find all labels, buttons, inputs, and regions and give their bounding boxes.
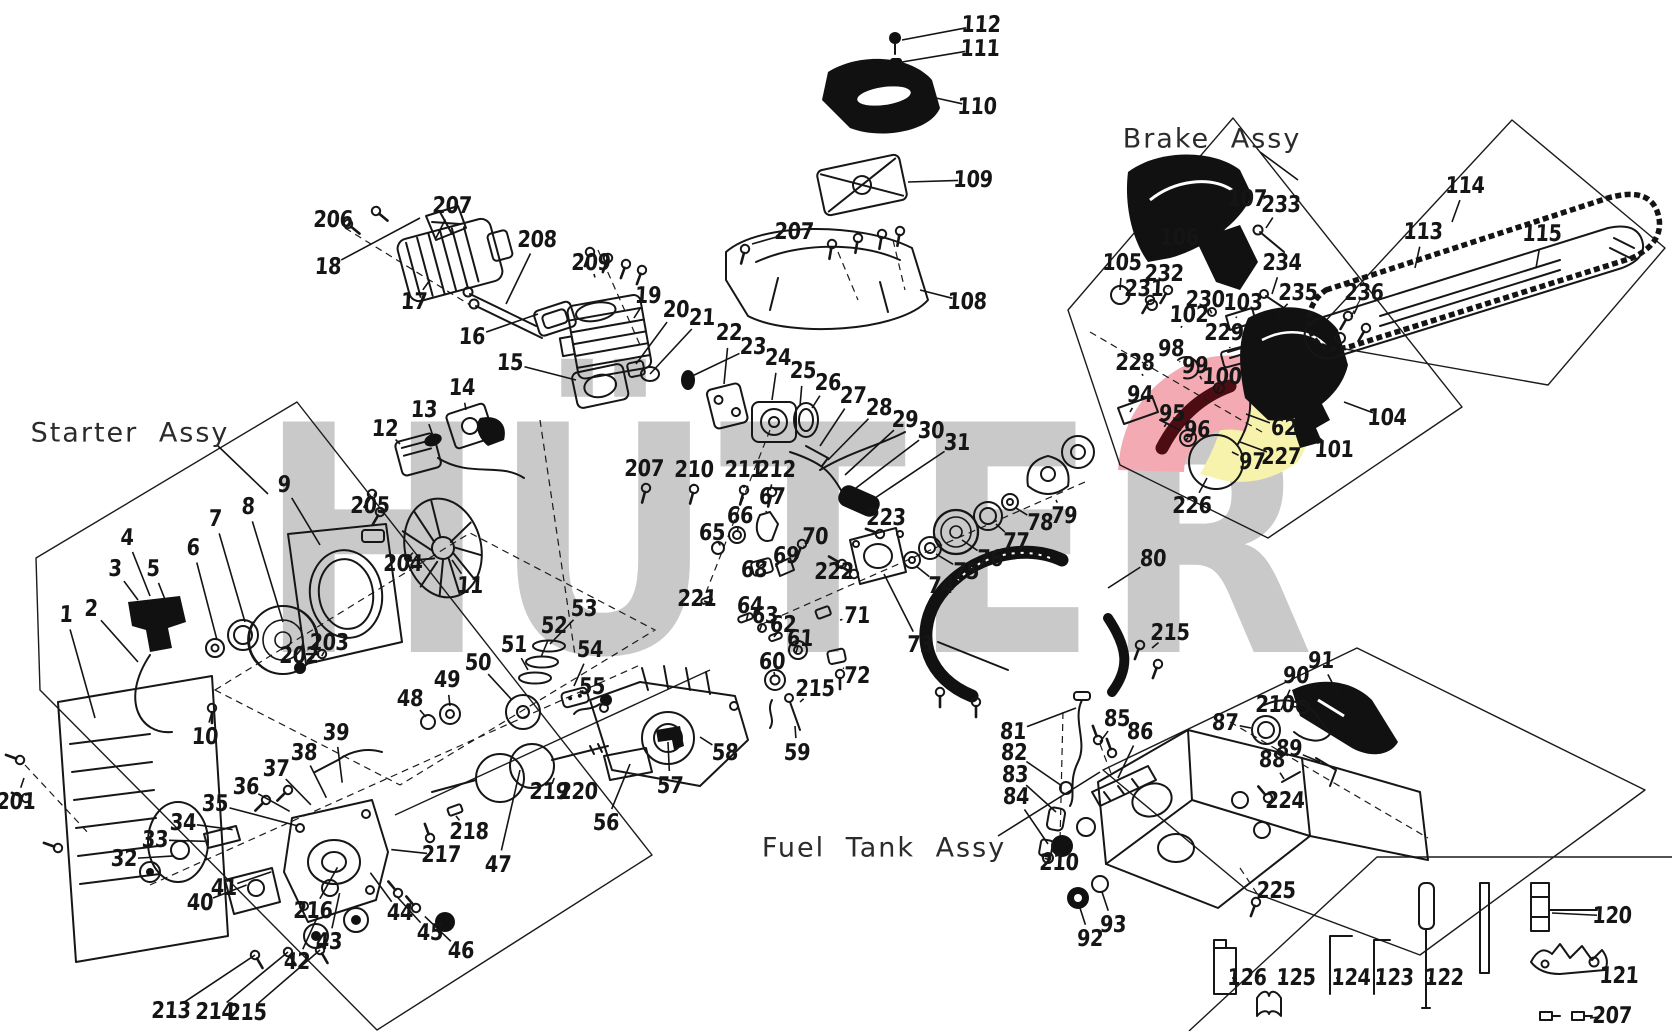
part-callout: 29 — [891, 407, 919, 433]
part-callout: 226 — [1172, 493, 1213, 519]
part-callout: 75 — [952, 559, 980, 585]
part-callout: 222 — [814, 559, 855, 585]
part-callout: 30 — [917, 418, 945, 444]
part-callout: 224 — [1265, 788, 1306, 814]
part-callout: 113 — [1403, 219, 1444, 245]
diagram-canvas: HÜTER — [0, 0, 1672, 1031]
part-callout: 215 — [227, 1000, 268, 1026]
part-callout: 68 — [740, 557, 768, 583]
part-callout: 24 — [764, 345, 792, 371]
part-callout: 15 — [496, 350, 524, 376]
part-callout: 50 — [464, 650, 492, 676]
part-callout: 87 — [1211, 710, 1239, 736]
part-callout: 42 — [283, 949, 311, 975]
part-callout: 220 — [558, 779, 599, 805]
part-callout: 56 — [592, 810, 620, 836]
part-callout: 104 — [1367, 405, 1408, 431]
part-callout: 215 — [795, 676, 836, 702]
part-callout: 115 — [1522, 221, 1563, 247]
part-callout: 95 — [1158, 401, 1186, 427]
part-callout: 206 — [313, 207, 354, 233]
part-callout: 228 — [1115, 350, 1156, 376]
part-callout: 39 — [322, 720, 350, 746]
part-callout: 74 — [927, 573, 955, 599]
part-callout: 79 — [1050, 503, 1078, 529]
part-callout: 10 — [191, 724, 219, 750]
part-callout: 207 — [432, 193, 473, 219]
part-callout: 111 — [960, 36, 1001, 62]
part-callout: 109 — [953, 167, 994, 193]
part-callout: 217 — [421, 842, 462, 868]
section-title-brake: Brake Assy — [1123, 124, 1302, 155]
part-callout: 91 — [1307, 648, 1335, 674]
callout-labels-layer: 1234567891020120220311204205121314206207… — [0, 0, 1672, 1031]
part-callout: 76 — [976, 546, 1004, 572]
part-callout: 54 — [576, 637, 604, 663]
part-callout: 45 — [416, 920, 444, 946]
part-callout: 26 — [814, 370, 842, 396]
part-callout: 212 — [756, 457, 797, 483]
part-callout: 69 — [772, 543, 800, 569]
part-callout: 114 — [1445, 173, 1486, 199]
part-callout: 225 — [1256, 878, 1297, 904]
part-callout: 120 — [1592, 903, 1633, 929]
part-callout: 62 — [1270, 415, 1298, 441]
part-callout: 86 — [1126, 719, 1154, 745]
part-callout: 2 — [84, 596, 99, 622]
part-callout: 1 — [59, 602, 74, 628]
part-callout: 93 — [1099, 912, 1127, 938]
section-title-starter: Starter Assy — [31, 418, 230, 449]
part-callout: 72 — [843, 663, 871, 689]
part-callout: 80 — [1139, 546, 1167, 572]
part-callout: 71 — [843, 603, 871, 629]
part-callout: 66 — [726, 503, 754, 529]
part-callout: 98 — [1157, 336, 1185, 362]
part-callout: 12 — [371, 416, 399, 442]
part-callout: 35 — [201, 791, 229, 817]
part-callout: 41 — [210, 875, 238, 901]
part-callout: 28 — [865, 395, 893, 421]
part-callout: 11 — [456, 573, 484, 599]
part-callout: 207 — [624, 456, 665, 482]
part-callout: 94 — [1126, 382, 1154, 408]
part-callout: 205 — [350, 493, 391, 519]
part-callout: 20 — [662, 297, 690, 323]
part-callout: 96 — [1183, 417, 1211, 443]
part-callout: 47 — [484, 852, 512, 878]
part-callout: 207 — [1592, 1003, 1633, 1029]
part-callout: 203 — [309, 630, 350, 656]
part-callout: 25 — [789, 358, 817, 384]
part-callout: 210 — [1255, 692, 1296, 718]
part-callout: 101 — [1314, 437, 1355, 463]
part-callout: 52 — [540, 613, 568, 639]
part-callout: 13 — [410, 397, 438, 423]
part-callout: 18 — [314, 254, 342, 280]
part-callout: 108 — [947, 289, 988, 315]
part-callout: 19 — [634, 283, 662, 309]
part-callout: 73 — [906, 632, 934, 658]
part-callout: 210 — [674, 457, 715, 483]
part-callout: 209 — [571, 250, 612, 276]
part-callout: 125 — [1276, 965, 1317, 991]
part-callout: 7 — [208, 506, 223, 532]
part-callout: 207 — [774, 219, 815, 245]
part-callout: 124 — [1331, 965, 1372, 991]
part-callout: 100 — [1202, 364, 1243, 390]
part-callout: 34 — [169, 810, 197, 836]
part-callout: 5 — [146, 556, 161, 582]
part-callout: 90 — [1282, 663, 1310, 689]
part-callout: 58 — [711, 740, 739, 766]
part-callout: 218 — [449, 819, 490, 845]
part-callout: 21 — [688, 305, 716, 331]
part-callout: 6 — [186, 535, 201, 561]
part-callout: 121 — [1599, 963, 1640, 989]
part-callout: 201 — [0, 789, 36, 815]
part-callout: 84 — [1002, 784, 1030, 810]
part-callout: 9 — [277, 472, 292, 498]
part-callout: 16 — [458, 324, 486, 350]
part-callout: 14 — [448, 375, 476, 401]
part-callout: 59 — [783, 740, 811, 766]
part-callout: 216 — [293, 898, 334, 924]
part-callout: 61 — [786, 626, 814, 652]
part-callout: 8 — [241, 494, 256, 520]
part-callout: 213 — [151, 998, 192, 1024]
part-callout: 208 — [517, 227, 558, 253]
part-callout: 51 — [500, 632, 528, 658]
part-callout: 32 — [110, 846, 138, 872]
part-callout: 105 — [1102, 250, 1143, 276]
part-callout: 106 — [1159, 225, 1200, 251]
section-title-fuel: Fuel Tank Assy — [762, 833, 1006, 864]
part-callout: 57 — [656, 773, 684, 799]
part-callout: 27 — [839, 383, 867, 409]
part-callout: 53 — [570, 596, 598, 622]
part-callout: 89 — [1275, 736, 1303, 762]
part-callout: 102 — [1169, 302, 1210, 328]
part-callout: 103 — [1223, 290, 1264, 316]
part-callout: 48 — [396, 686, 424, 712]
part-callout: 126 — [1227, 965, 1268, 991]
part-callout: 234 — [1262, 250, 1303, 276]
part-callout: 229 — [1204, 320, 1245, 346]
part-callout: 22 — [715, 320, 743, 346]
part-callout: 33 — [141, 827, 169, 853]
part-callout: 210 — [1039, 850, 1080, 876]
part-callout: 204 — [383, 551, 424, 577]
part-callout: 49 — [433, 667, 461, 693]
part-callout: 236 — [1344, 280, 1385, 306]
part-callout: 112 — [961, 12, 1002, 38]
part-callout: 122 — [1424, 965, 1465, 991]
part-callout: 38 — [290, 740, 318, 766]
part-callout: 23 — [739, 334, 767, 360]
part-callout: 44 — [386, 900, 414, 926]
part-callout: 4 — [120, 525, 135, 551]
part-callout: 67 — [758, 484, 786, 510]
part-callout: 235 — [1278, 280, 1319, 306]
part-callout: 215 — [1150, 620, 1191, 646]
part-callout: 37 — [262, 756, 290, 782]
part-callout: 65 — [698, 520, 726, 546]
part-callout: 223 — [866, 505, 907, 531]
part-callout: 3 — [108, 556, 123, 582]
part-callout: 43 — [315, 929, 343, 955]
part-callout: 110 — [957, 94, 998, 120]
part-callout: 36 — [232, 774, 260, 800]
part-callout: 55 — [578, 674, 606, 700]
part-callout: 227 — [1261, 444, 1302, 470]
part-callout: 233 — [1261, 192, 1302, 218]
part-callout: 60 — [758, 649, 786, 675]
part-callout: 17 — [400, 289, 428, 315]
part-callout: 46 — [447, 938, 475, 964]
part-callout: 70 — [801, 524, 829, 550]
part-callout: 123 — [1374, 965, 1415, 991]
part-callout: 221 — [677, 586, 718, 612]
part-callout: 232 — [1144, 261, 1185, 287]
part-callout: 31 — [943, 430, 971, 456]
